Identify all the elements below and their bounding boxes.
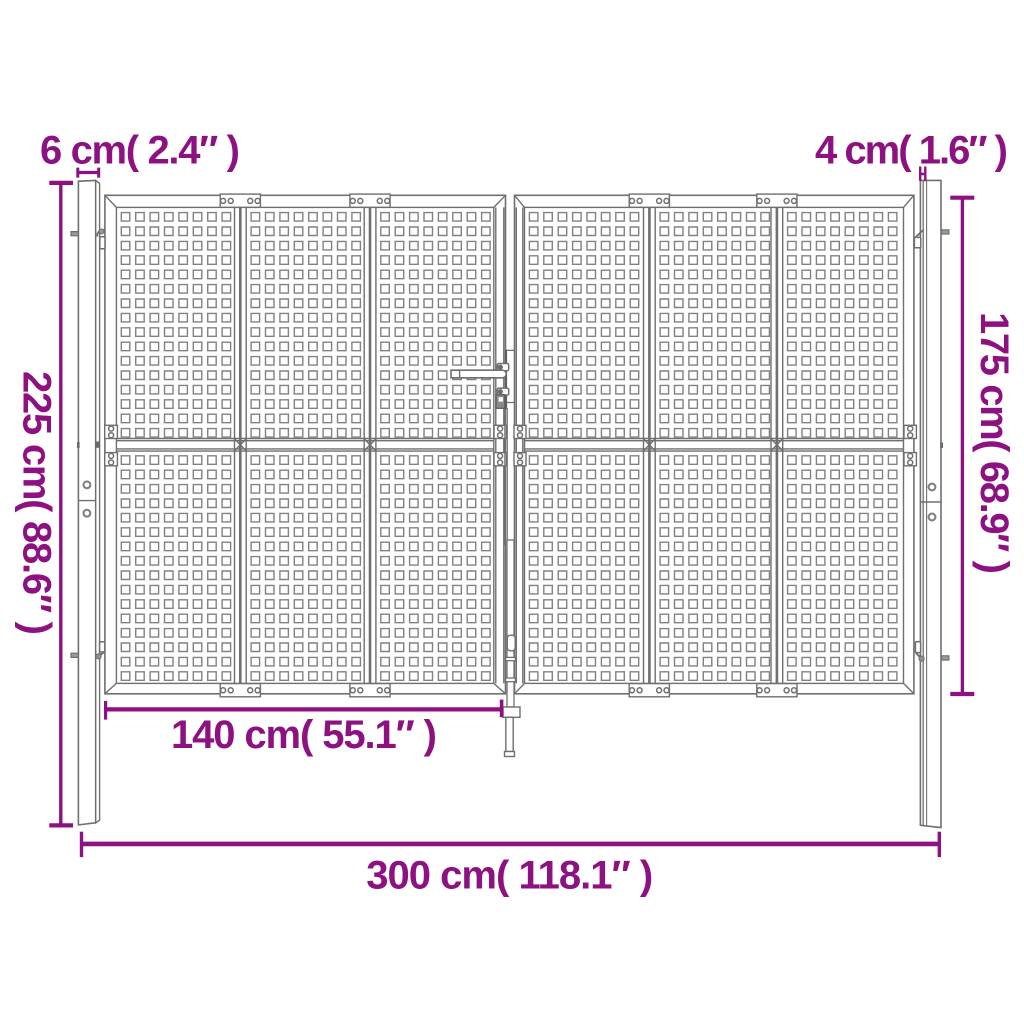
svg-text:300 cm( 118.1″ ): 300 cm( 118.1″ ) <box>366 854 653 898</box>
svg-text:6 cm( 2.4″ ): 6 cm( 2.4″ ) <box>40 128 240 172</box>
svg-text:175 cm( 68.9″ ): 175 cm( 68.9″ ) <box>972 312 1016 574</box>
svg-text:140 cm( 55.1″ ): 140 cm( 55.1″ ) <box>171 713 437 757</box>
svg-text:225 cm( 88.6″ ): 225 cm( 88.6″ ) <box>14 371 58 635</box>
svg-text:4 cm( 1.6″ ): 4 cm( 1.6″ ) <box>815 128 1008 172</box>
